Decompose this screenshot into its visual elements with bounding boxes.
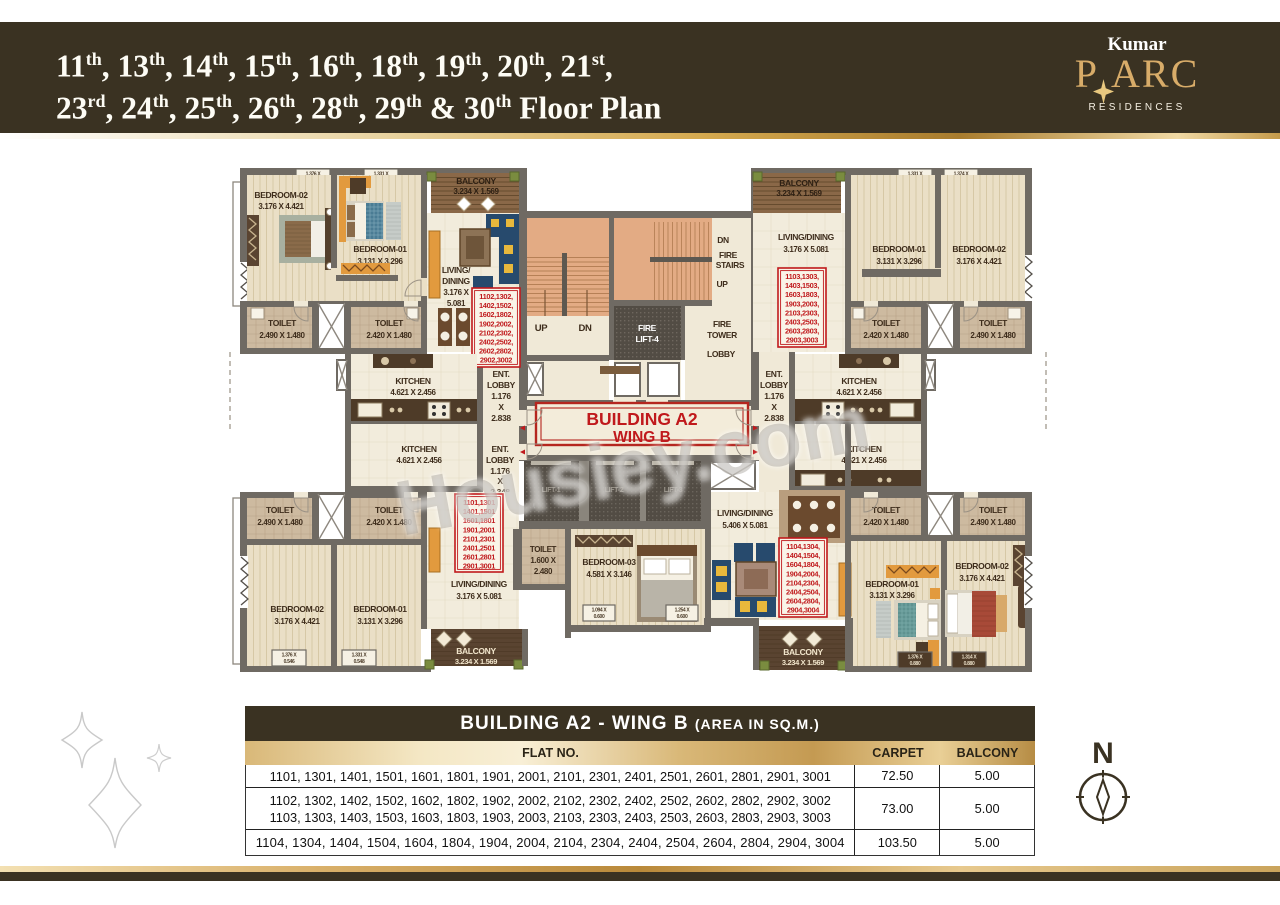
svg-text:2403,2503,: 2403,2503, — [785, 318, 819, 327]
svg-text:1604,1804,: 1604,1804, — [786, 560, 820, 569]
svg-text:1603,1803,: 1603,1803, — [785, 290, 819, 299]
svg-text:TOILET: TOILET — [979, 505, 1008, 515]
svg-text:3.176 X 4.421: 3.176 X 4.421 — [959, 574, 1005, 583]
svg-text:DN: DN — [717, 235, 729, 245]
svg-text:BEDROOM-01: BEDROOM-01 — [872, 244, 926, 254]
svg-text:BALCONY: BALCONY — [456, 176, 496, 186]
svg-text:ENT.: ENT. — [492, 369, 509, 379]
svg-text:3.176 X 5.081: 3.176 X 5.081 — [783, 245, 829, 254]
svg-text:2404,2504,: 2404,2504, — [786, 588, 820, 597]
svg-text:1902,2002,: 1902,2002, — [479, 319, 513, 328]
svg-text:2.490 X 1.480: 2.490 X 1.480 — [970, 331, 1016, 340]
svg-text:1103,1303,: 1103,1303, — [785, 272, 819, 281]
svg-text:3.131 X 3.296: 3.131 X 3.296 — [357, 617, 403, 626]
svg-text:1.176: 1.176 — [491, 391, 511, 401]
svg-text:3.234 X 1.569: 3.234 X 1.569 — [776, 189, 822, 198]
svg-text:UP: UP — [716, 279, 728, 289]
svg-text:2402,2502,: 2402,2502, — [479, 338, 513, 347]
svg-text:3.176 X: 3.176 X — [443, 288, 469, 297]
svg-text:BALCONY: BALCONY — [779, 178, 819, 188]
svg-text:0.600: 0.600 — [677, 614, 688, 620]
svg-text:FIRE: FIRE — [638, 323, 657, 333]
svg-text:3.176 X 4.421: 3.176 X 4.421 — [274, 617, 320, 626]
svg-text:LIFT-4: LIFT-4 — [636, 334, 660, 344]
svg-text:TOILET: TOILET — [268, 318, 297, 328]
svg-text:1402,1502,: 1402,1502, — [479, 301, 513, 310]
svg-text:2602,2802,: 2602,2802, — [479, 347, 513, 356]
svg-text:1404,1504,: 1404,1504, — [786, 551, 820, 560]
svg-text:0.880: 0.880 — [910, 661, 921, 667]
svg-text:3.176 X 4.421: 3.176 X 4.421 — [956, 257, 1002, 266]
svg-text:0.548: 0.548 — [354, 659, 365, 665]
svg-text:2.490 X 1.480: 2.490 X 1.480 — [970, 518, 1016, 527]
svg-text:BALCONY: BALCONY — [783, 647, 823, 657]
svg-text:1403,1503,: 1403,1503, — [785, 281, 819, 290]
svg-text:ENT.: ENT. — [765, 369, 782, 379]
svg-text:X: X — [498, 402, 504, 412]
svg-text:UP: UP — [535, 323, 549, 334]
svg-text:0.600: 0.600 — [594, 614, 605, 620]
svg-text:LOBBY: LOBBY — [487, 380, 516, 390]
svg-text:2903,3003: 2903,3003 — [786, 336, 818, 345]
svg-text:2603,2803,: 2603,2803, — [785, 327, 819, 336]
svg-text:4.581 X 3.146: 4.581 X 3.146 — [586, 570, 632, 579]
svg-text:FIRE: FIRE — [719, 250, 738, 260]
svg-text:2103,2303,: 2103,2303, — [785, 308, 819, 317]
svg-text:BEDROOM-01: BEDROOM-01 — [353, 604, 407, 614]
svg-text:5.081: 5.081 — [447, 299, 466, 308]
svg-text:1.331 X: 1.331 X — [352, 653, 368, 659]
svg-text:BEDROOM-02: BEDROOM-02 — [254, 190, 308, 200]
svg-text:TOILET: TOILET — [872, 505, 901, 515]
svg-text:2.490 X 1.480: 2.490 X 1.480 — [257, 518, 303, 527]
svg-text:3.234 X 1.569: 3.234 X 1.569 — [453, 187, 499, 196]
svg-text:2902,3002: 2902,3002 — [480, 356, 512, 365]
svg-text:LOBBY: LOBBY — [760, 380, 789, 390]
svg-text:BEDROOM-02: BEDROOM-02 — [955, 561, 1009, 571]
svg-text:2.420 X 1.480: 2.420 X 1.480 — [863, 518, 909, 527]
svg-text:3.131 X 3.296: 3.131 X 3.296 — [869, 591, 915, 600]
svg-text:TOILET: TOILET — [375, 318, 404, 328]
svg-text:KITCHEN: KITCHEN — [395, 376, 431, 386]
svg-text:1102,1302,: 1102,1302, — [479, 292, 513, 301]
svg-text:KITCHEN: KITCHEN — [401, 444, 437, 454]
svg-text:BEDROOM-01: BEDROOM-01 — [353, 244, 407, 254]
svg-text:0.546: 0.546 — [284, 659, 295, 665]
svg-text:2.490 X 1.480: 2.490 X 1.480 — [259, 331, 305, 340]
svg-text:1904,2004,: 1904,2004, — [786, 569, 820, 578]
svg-text:2904,3004: 2904,3004 — [787, 606, 820, 615]
svg-text:1.254 X: 1.254 X — [675, 608, 691, 614]
svg-text:4.621 X 2.456: 4.621 X 2.456 — [390, 388, 436, 397]
svg-text:3.176 X 5.081: 3.176 X 5.081 — [456, 592, 502, 601]
svg-text:STAIRS: STAIRS — [716, 260, 745, 270]
svg-text:2604,2804,: 2604,2804, — [786, 597, 820, 606]
svg-text:1602,1802,: 1602,1802, — [479, 310, 513, 319]
svg-text:1.314 X: 1.314 X — [962, 655, 978, 661]
svg-text:2.838: 2.838 — [491, 413, 511, 423]
svg-text:TOILET: TOILET — [266, 505, 295, 515]
svg-text:1104,1304,: 1104,1304, — [786, 542, 820, 551]
svg-text:3.234 X 1.569: 3.234 X 1.569 — [455, 657, 497, 666]
svg-text:TOILET: TOILET — [979, 318, 1008, 328]
svg-text:3.131 X 3.296: 3.131 X 3.296 — [876, 257, 922, 266]
svg-text:2102,2302,: 2102,2302, — [479, 328, 513, 337]
svg-text:BEDROOM-01: BEDROOM-01 — [865, 579, 919, 589]
svg-text:N: N — [1092, 737, 1114, 770]
svg-text:LIVING/DINING: LIVING/DINING — [778, 232, 835, 242]
svg-text:2.420 X 1.480: 2.420 X 1.480 — [366, 331, 412, 340]
svg-text:BALCONY: BALCONY — [456, 646, 496, 656]
svg-text:TOWER: TOWER — [707, 330, 737, 340]
svg-text:FIRE: FIRE — [713, 319, 732, 329]
svg-text:1903,2003,: 1903,2003, — [785, 299, 819, 308]
svg-text:2104,2304,: 2104,2304, — [786, 578, 820, 587]
svg-text:BEDROOM-02: BEDROOM-02 — [270, 604, 324, 614]
svg-text:DN: DN — [578, 323, 592, 334]
svg-text:1.376 X: 1.376 X — [908, 655, 924, 661]
svg-text:3.176 X 4.421: 3.176 X 4.421 — [258, 202, 304, 211]
svg-text:TOILET: TOILET — [872, 318, 901, 328]
svg-text:DINING: DINING — [442, 276, 470, 286]
svg-text:LIVING/DINING: LIVING/DINING — [451, 579, 508, 589]
svg-text:1.376 X: 1.376 X — [282, 653, 298, 659]
svg-text:BEDROOM-02: BEDROOM-02 — [952, 244, 1006, 254]
svg-text:0.880: 0.880 — [964, 661, 975, 667]
svg-text:LOBBY: LOBBY — [707, 349, 736, 359]
svg-text:3.234 X 1.569: 3.234 X 1.569 — [782, 658, 824, 667]
svg-text:1.094 X: 1.094 X — [592, 608, 608, 614]
svg-text:2.420 X 1.480: 2.420 X 1.480 — [863, 331, 909, 340]
svg-text:2.480: 2.480 — [534, 567, 553, 576]
svg-text:BEDROOM-03: BEDROOM-03 — [582, 557, 636, 567]
